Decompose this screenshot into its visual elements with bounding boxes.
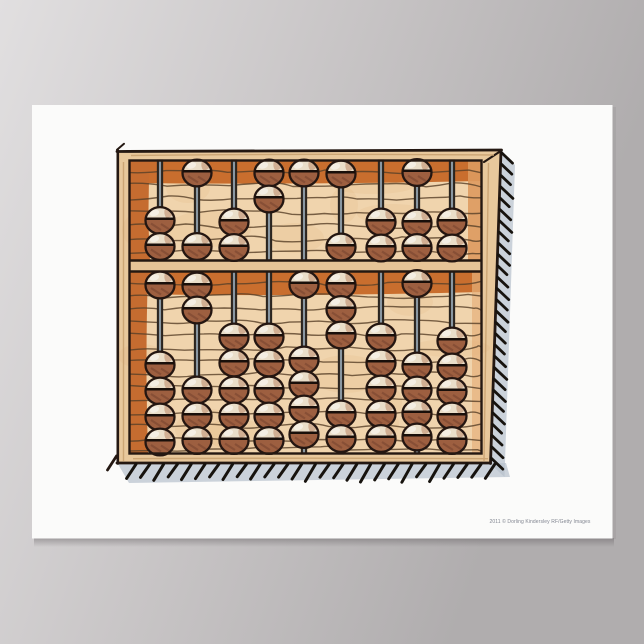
svg-text:2011 © Dorling Kindersley RF/G: 2011 © Dorling Kindersley RF/Getty Image…: [489, 518, 590, 525]
